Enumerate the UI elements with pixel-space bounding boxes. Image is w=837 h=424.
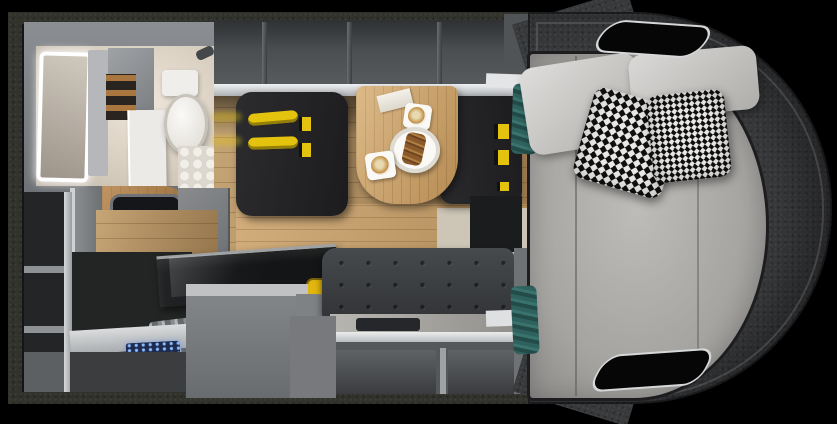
lounge-sofa bbox=[322, 248, 514, 318]
shower-door-panel bbox=[127, 110, 166, 189]
locker-divider bbox=[347, 22, 352, 86]
shelf-face bbox=[24, 266, 64, 273]
locker-divider bbox=[437, 22, 442, 86]
mid-column bbox=[290, 316, 336, 398]
coffee-cup bbox=[371, 156, 390, 175]
seatbelt-ghost bbox=[212, 136, 242, 146]
led-mirror bbox=[36, 51, 91, 182]
locker-divider bbox=[262, 22, 267, 86]
coffee-cup bbox=[408, 107, 426, 125]
aisle-floor bbox=[96, 210, 218, 254]
seatbelt-buckle bbox=[299, 143, 311, 157]
toilet-bowl bbox=[164, 94, 208, 154]
pillow-houndstooth bbox=[646, 88, 733, 184]
seatbelt-buckle bbox=[497, 182, 509, 191]
seatbelt-buckle bbox=[299, 117, 311, 131]
storage-opening bbox=[336, 350, 436, 394]
dark-wardrobe bbox=[470, 196, 522, 252]
mirror-side-panel bbox=[88, 50, 108, 176]
seatbelt-buckle bbox=[494, 124, 509, 139]
bench-handle bbox=[356, 318, 420, 331]
seatbelt-ghost bbox=[212, 112, 242, 122]
shelf-bottom bbox=[24, 352, 64, 392]
shelf-face bbox=[24, 326, 64, 333]
storage-divider bbox=[440, 348, 446, 394]
bathroom bbox=[24, 22, 236, 194]
seatbelt-buckle bbox=[494, 150, 509, 165]
floorplan-canvas bbox=[0, 0, 837, 424]
teal-towel bbox=[510, 285, 540, 354]
storage-opening bbox=[448, 350, 518, 394]
toilet-cistern bbox=[162, 70, 198, 96]
seatbelt-strap bbox=[248, 136, 298, 150]
kitchen-cabinet-top-edge bbox=[186, 284, 308, 296]
